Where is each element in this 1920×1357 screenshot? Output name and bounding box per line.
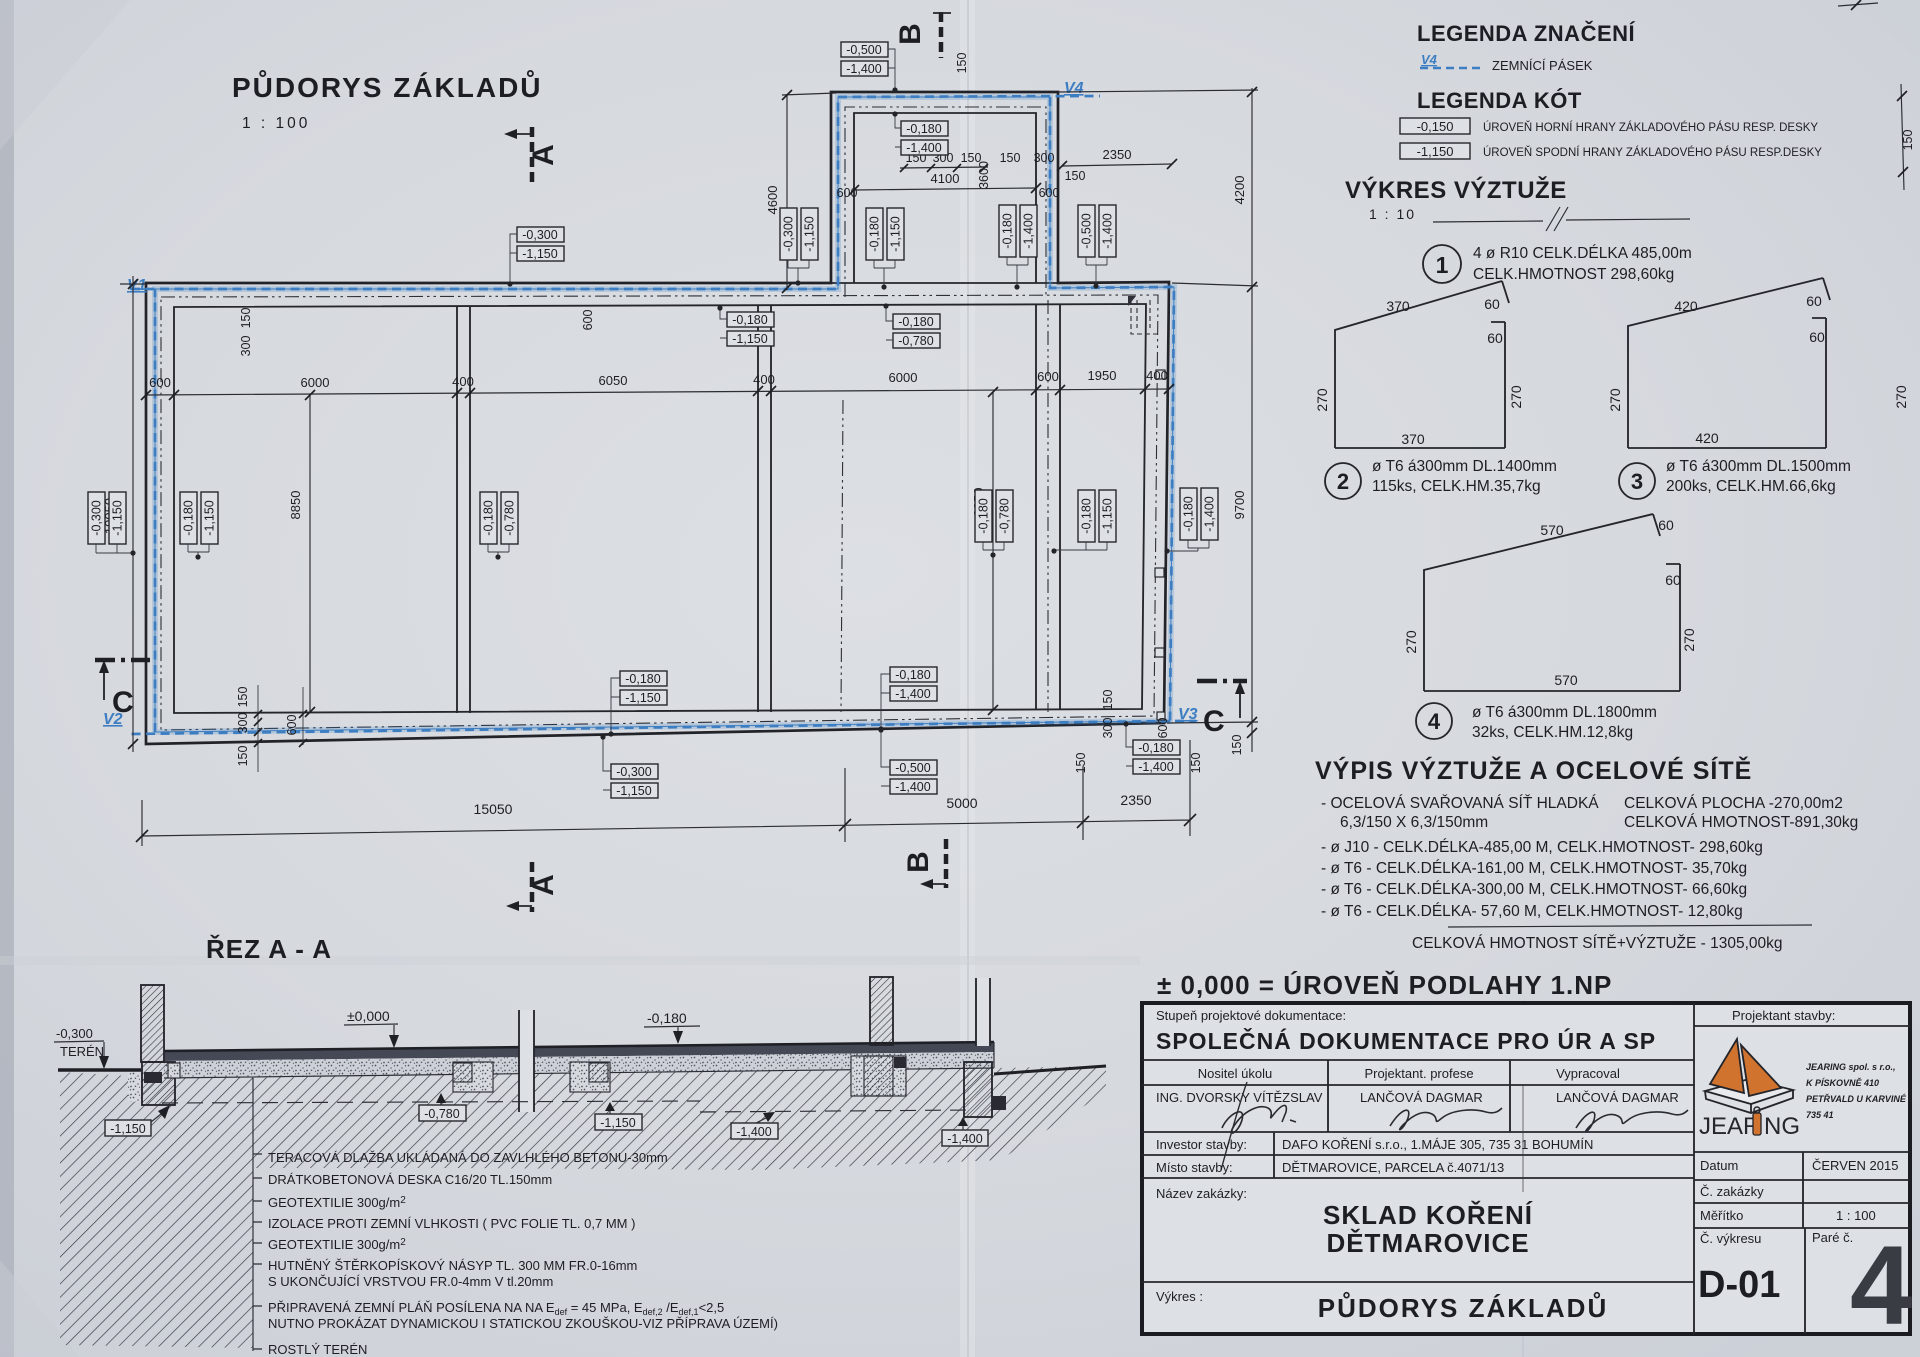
svg-text:DĚTMAROVICE, PARCELA č.4071/: DĚTMAROVICE, PARCELA č.4071/13 <box>1282 1160 1504 1175</box>
svg-text:420: 420 <box>1695 430 1719 446</box>
svg-text:420: 420 <box>1674 298 1698 314</box>
svg-text:6000: 6000 <box>889 370 918 385</box>
svg-text:300: 300 <box>239 336 253 357</box>
svg-text:150: 150 <box>1101 690 1115 711</box>
svg-text:150: 150 <box>1065 169 1086 183</box>
svg-text:600: 600 <box>285 715 299 736</box>
svg-text:- ø J10 - CELK.DÉLKA-485,00 M,: - ø J10 - CELK.DÉLKA-485,00 M, CELK.HMOT… <box>1321 839 1763 856</box>
svg-text:-0,780: -0,780 <box>898 334 933 348</box>
svg-text:5000: 5000 <box>946 795 977 811</box>
svg-text:-1,150: -1,150 <box>1417 144 1454 159</box>
svg-text:-0,300: -0,300 <box>90 500 104 535</box>
svg-text:B: B <box>902 851 935 873</box>
svg-text:±0,000: ±0,000 <box>347 1008 390 1024</box>
svg-text:150: 150 <box>955 53 969 74</box>
svg-text:6000: 6000 <box>301 375 330 390</box>
svg-text:Místo stavby:: Místo stavby: <box>1156 1160 1233 1175</box>
svg-text:370: 370 <box>1386 298 1410 314</box>
svg-text:60: 60 <box>1806 293 1822 309</box>
svg-text:32ks, CELK.HM.12,8kg: 32ks, CELK.HM.12,8kg <box>1472 724 1633 741</box>
svg-text:GEOTEXTILIE 300g/m2: GEOTEXTILIE 300g/m2 <box>268 1237 406 1252</box>
svg-text:150: 150 <box>1230 735 1244 756</box>
svg-text:-0,180: -0,180 <box>482 500 496 535</box>
svg-text:1: 1 <box>1436 252 1449 278</box>
svg-text:1 : 100: 1 : 100 <box>242 115 310 132</box>
svg-text:Projektant. profese: Projektant. profese <box>1364 1066 1473 1081</box>
svg-text:570: 570 <box>1540 522 1564 538</box>
svg-text:600: 600 <box>149 375 171 390</box>
svg-text:-1,150: -1,150 <box>889 216 903 251</box>
svg-text:-1,150: -1,150 <box>522 247 557 261</box>
svg-text:-0,300: -0,300 <box>522 228 557 242</box>
svg-text:-1,400: -1,400 <box>947 1132 982 1146</box>
svg-text:1 : 100: 1 : 100 <box>1836 1208 1876 1223</box>
svg-text:V4: V4 <box>1421 52 1438 67</box>
svg-text:-0,180: -0,180 <box>732 313 767 327</box>
svg-text:D-01: D-01 <box>1698 1264 1780 1306</box>
svg-text:4: 4 <box>1428 709 1441 734</box>
svg-text:Výkres :: Výkres : <box>1156 1289 1203 1304</box>
svg-text:-1,400: -1,400 <box>846 62 881 76</box>
svg-text:Investor stavby:: Investor stavby: <box>1156 1137 1247 1152</box>
svg-text:200ks, CELK.HM.66,6kg: 200ks, CELK.HM.66,6kg <box>1666 478 1836 495</box>
svg-text:TERACOVÁ DLAŽBA UKLÁDANÁ DO ZA: TERACOVÁ DLAŽBA UKLÁDANÁ DO ZAVLHLÉHO BE… <box>268 1150 668 1165</box>
svg-text:-0,300: -0,300 <box>782 216 796 251</box>
svg-text:Vypracoval: Vypracoval <box>1556 1066 1620 1081</box>
svg-text:Stupeň projektové dokumentac: Stupeň projektové dokumentace: <box>1156 1008 1346 1023</box>
svg-text:1950: 1950 <box>1088 368 1117 383</box>
svg-text:60: 60 <box>1487 330 1503 346</box>
svg-text:ŘEZ A - A: ŘEZ A - A <box>206 934 332 964</box>
svg-text:150: 150 <box>236 746 250 767</box>
svg-text:-0,180: -0,180 <box>977 498 991 533</box>
svg-text:CELK.HMOTNOST 298,60kg: CELK.HMOTNOST 298,60kg <box>1473 266 1674 283</box>
svg-text:- ø T6 - CELK.DÉLKA-300,00 M,: - ø T6 - CELK.DÉLKA-300,00 M, CELK.HMOTN… <box>1321 881 1747 898</box>
svg-text:V3: V3 <box>1178 706 1198 723</box>
svg-text:JEARING spol. s r.o.,: JEARING spol. s r.o., <box>1806 1062 1896 1072</box>
svg-text:A: A <box>527 874 560 896</box>
svg-text:6050: 6050 <box>599 373 628 388</box>
svg-text:-1,150: -1,150 <box>803 216 817 251</box>
svg-text:ÚROVEŇ SPODNÍ HRANY ZÁKLADO: ÚROVEŇ SPODNÍ HRANY ZÁKLADOVÉHO PÁSU RES… <box>1483 146 1822 159</box>
svg-text:300: 300 <box>236 713 250 734</box>
svg-text:2350: 2350 <box>1103 147 1132 162</box>
svg-text:HUTNĚNÝ ŠTĚRKOPÍSKOVÝ NÁSYP TL: HUTNĚNÝ ŠTĚRKOPÍSKOVÝ NÁSYP TL. 300 MM F… <box>268 1258 637 1273</box>
svg-text:-1,400: -1,400 <box>1101 213 1115 248</box>
svg-text:270: 270 <box>1681 628 1697 652</box>
svg-text:PŮDORYS ZÁKLADŮ: PŮDORYS ZÁKLADŮ <box>232 70 543 103</box>
svg-text:-1,400: -1,400 <box>906 141 941 155</box>
svg-text:-1,150: -1,150 <box>110 1122 145 1136</box>
svg-text:2350: 2350 <box>1120 792 1151 808</box>
svg-text:SPOLEČNÁ DOKUMENTACE PRO ÚR: SPOLEČNÁ DOKUMENTACE PRO ÚR A SP <box>1156 1027 1656 1054</box>
svg-text:Č. výkresu: Č. výkresu <box>1700 1231 1761 1246</box>
svg-text:3600: 3600 <box>977 161 991 189</box>
svg-text:-0,300: -0,300 <box>56 1026 93 1041</box>
svg-text:Název zakázky:: Název zakázky: <box>1156 1186 1247 1201</box>
svg-text:S UKONČUJÍCÍ VRSTVOU FR.0-4mm: S UKONČUJÍCÍ VRSTVOU FR.0-4mm V tl.20mm <box>268 1274 553 1289</box>
svg-text:-0,180: -0,180 <box>1138 741 1173 755</box>
svg-text:150: 150 <box>236 687 250 708</box>
svg-text:150: 150 <box>239 308 253 329</box>
svg-text:NUTNO PROKÁZAT DYNAMICKOU I ST: NUTNO PROKÁZAT DYNAMICKOU I STATICKOU ZK… <box>268 1316 778 1331</box>
svg-text:300: 300 <box>1101 718 1115 739</box>
svg-text:-0,300: -0,300 <box>616 765 651 779</box>
svg-text:-1,400: -1,400 <box>895 687 930 701</box>
svg-text:150: 150 <box>1189 753 1203 774</box>
svg-text:DRÁTKOBETONOVÁ DESKA C16/20 TL: DRÁTKOBETONOVÁ DESKA C16/20 TL.150mm <box>268 1172 552 1187</box>
svg-text:4600: 4600 <box>765 186 780 215</box>
svg-text:-1,400: -1,400 <box>1203 496 1217 531</box>
svg-text:9700: 9700 <box>1232 491 1247 520</box>
svg-text:-0,180: -0,180 <box>182 500 196 535</box>
svg-text:-1,150: -1,150 <box>203 500 217 535</box>
svg-text:Č. zakázky: Č. zakázky <box>1700 1184 1764 1199</box>
svg-text:V4: V4 <box>1064 80 1084 97</box>
svg-text:Nositel úkolu: Nositel úkolu <box>1198 1066 1272 1081</box>
svg-text:270: 270 <box>1314 388 1330 412</box>
svg-text:VÝKRES VÝZTUŽE: VÝKRES VÝZTUŽE <box>1345 176 1567 204</box>
svg-text:PŮDORYS ZÁKLADŮ: PŮDORYS ZÁKLADŮ <box>1318 1291 1608 1323</box>
svg-text:150: 150 <box>1074 753 1088 774</box>
svg-text:Projektant stavby:: Projektant stavby: <box>1732 1008 1835 1023</box>
svg-text:-0,180: -0,180 <box>647 1010 687 1026</box>
svg-text:SKLAD KOŘENÍ: SKLAD KOŘENÍ <box>1323 1200 1533 1230</box>
svg-text:CELKOVÁ HMOTNOST SÍTĚ+VÝZTUŽE: CELKOVÁ HMOTNOST SÍTĚ+VÝZTUŽE - 1305,00k… <box>1412 935 1783 952</box>
svg-text:ČERVEN 2015: ČERVEN 2015 <box>1812 1158 1898 1173</box>
svg-text:-1,150: -1,150 <box>616 784 651 798</box>
svg-text:-0,500: -0,500 <box>846 43 881 57</box>
svg-text:735 41: 735 41 <box>1806 1110 1834 1120</box>
svg-text:150: 150 <box>1000 151 1021 165</box>
svg-text:270: 270 <box>1607 388 1623 412</box>
svg-text:6,3/150 X 6,3/150mm: 6,3/150 X 6,3/150mm <box>1340 814 1488 831</box>
svg-text:-0,500: -0,500 <box>895 761 930 775</box>
svg-text:B: B <box>894 23 927 45</box>
svg-text:-0,180: -0,180 <box>906 122 941 136</box>
svg-text:570: 570 <box>1554 672 1578 688</box>
svg-text:400: 400 <box>753 372 775 387</box>
svg-text:4 ø R10 CELK.DÉLKA 485,00m: 4 ø R10 CELK.DÉLKA 485,00m <box>1473 245 1692 262</box>
svg-text:Měřítko: Měřítko <box>1700 1208 1743 1223</box>
svg-text:150: 150 <box>1901 130 1915 151</box>
svg-text:270: 270 <box>1508 385 1524 409</box>
svg-text:IZOLACE PROTI ZEMNÍ VLHKOSTI (: IZOLACE PROTI ZEMNÍ VLHKOSTI ( PVC FOLIE… <box>268 1216 635 1231</box>
svg-text:C: C <box>1203 705 1225 738</box>
svg-text:-0,150: -0,150 <box>1417 119 1454 134</box>
svg-text:3: 3 <box>1631 469 1643 494</box>
svg-text:Datum: Datum <box>1700 1158 1738 1173</box>
svg-text:15050: 15050 <box>474 801 513 817</box>
svg-text:A: A <box>527 144 560 166</box>
svg-text:60: 60 <box>1809 329 1825 345</box>
svg-text:400: 400 <box>1146 368 1168 383</box>
svg-text:-0,500: -0,500 <box>1080 213 1094 248</box>
svg-text:DĚTMAROVICE: DĚTMAROVICE <box>1326 1228 1529 1258</box>
svg-text:-0,780: -0,780 <box>424 1107 459 1121</box>
svg-text:-0,180: -0,180 <box>898 315 933 329</box>
svg-text:4100: 4100 <box>931 171 960 186</box>
svg-text:4: 4 <box>1850 1223 1912 1348</box>
svg-text:-1,150: -1,150 <box>732 332 767 346</box>
svg-text:-1,400: -1,400 <box>1138 760 1173 774</box>
svg-text:-1,150: -1,150 <box>1101 498 1115 533</box>
svg-text:LEGENDA KÓT: LEGENDA KÓT <box>1417 88 1582 113</box>
svg-text:ø T6 á300mm DL.1500mm: ø T6 á300mm DL.1500mm <box>1666 458 1851 475</box>
svg-text:600: 600 <box>1037 369 1059 384</box>
svg-text:60: 60 <box>1484 296 1500 312</box>
svg-text:270: 270 <box>1403 630 1419 654</box>
svg-text:-1,150: -1,150 <box>111 500 125 535</box>
svg-text:-0,180: -0,180 <box>1001 213 1015 248</box>
svg-text:600: 600 <box>837 186 858 200</box>
svg-text:NG: NG <box>1764 1113 1800 1140</box>
svg-text:300: 300 <box>1034 151 1055 165</box>
svg-text:-1,150: -1,150 <box>625 691 660 705</box>
svg-text:ZEMNÍCÍ PÁSEK: ZEMNÍCÍ PÁSEK <box>1492 58 1593 73</box>
svg-text:DAFO KOŘENÍ s.r.o., 1.MÁJE: DAFO KOŘENÍ s.r.o., 1.MÁJE 305, 735 31 B… <box>1282 1137 1593 1152</box>
svg-text:LEGENDA ZNAČENÍ: LEGENDA ZNAČENÍ <box>1417 21 1636 46</box>
svg-text:ø T6 á300mm DL.1800mm: ø T6 á300mm DL.1800mm <box>1472 704 1657 721</box>
svg-text:-1,400: -1,400 <box>736 1125 771 1139</box>
svg-text:± 0,000 = ÚROVEŇ PODLAHY 1.N: ± 0,000 = ÚROVEŇ PODLAHY 1.NP <box>1157 970 1612 1000</box>
svg-text:GEOTEXTILIE 300g/m2: GEOTEXTILIE 300g/m2 <box>268 1195 406 1210</box>
svg-text:JEAR: JEAR <box>1699 1113 1760 1140</box>
svg-text:-1,400: -1,400 <box>895 780 930 794</box>
svg-text:Paré č.: Paré č. <box>1812 1230 1853 1245</box>
svg-text:600: 600 <box>1156 718 1170 739</box>
svg-text:-0,780: -0,780 <box>503 500 517 535</box>
svg-text:TERÉN: TERÉN <box>60 1044 104 1059</box>
svg-text:ROSTLÝ TERÉN: ROSTLÝ TERÉN <box>268 1342 367 1357</box>
svg-text:CELKOVÁ PLOCHA -270,00m2: CELKOVÁ PLOCHA -270,00m2 <box>1624 795 1843 812</box>
svg-text:400: 400 <box>452 374 474 389</box>
svg-text:ÚROVEŇ HORNÍ HRANY ZÁKLADOV: ÚROVEŇ HORNÍ HRANY ZÁKLADOVÉHO PÁSU RESP… <box>1483 121 1818 134</box>
svg-text:270: 270 <box>1893 385 1909 409</box>
svg-text:4200: 4200 <box>1232 176 1247 205</box>
svg-text:ø T6 á300mm DL.1400mm: ø T6 á300mm DL.1400mm <box>1372 458 1557 475</box>
svg-text:60: 60 <box>1665 572 1681 588</box>
svg-text:8850: 8850 <box>288 491 303 520</box>
svg-text:60: 60 <box>1658 517 1674 533</box>
svg-text:600: 600 <box>581 310 595 331</box>
svg-text:PETŘVALD U KARVINÉ: PETŘVALD U KARVINÉ <box>1806 1093 1907 1104</box>
svg-text:K PÍSKOVNĚ 410: K PÍSKOVNĚ 410 <box>1806 1077 1879 1088</box>
svg-text:-0,180: -0,180 <box>1182 496 1196 531</box>
svg-text:VÝPIS VÝZTUŽE A OCELOVÉ SÍ: VÝPIS VÝZTUŽE A OCELOVÉ SÍTĚ <box>1315 755 1752 785</box>
svg-text:-0,180: -0,180 <box>868 216 882 251</box>
svg-text:LANČOVÁ DAGMAR: LANČOVÁ DAGMAR <box>1360 1090 1483 1105</box>
svg-text:- ø T6 - CELK.DÉLKA-161,00 M,: - ø T6 - CELK.DÉLKA-161,00 M, CELK.HMOTN… <box>1321 860 1747 877</box>
svg-text:115ks, CELK.HM.35,7kg: 115ks, CELK.HM.35,7kg <box>1372 478 1541 495</box>
svg-text:370: 370 <box>1401 431 1425 447</box>
svg-text:-0,780: -0,780 <box>998 498 1012 533</box>
svg-text:-0,180: -0,180 <box>625 672 660 686</box>
svg-text:2: 2 <box>1337 469 1349 494</box>
svg-text:- ø T6 - CELK.DÉLKA- 57,60 M,: - ø T6 - CELK.DÉLKA- 57,60 M, CELK.HMOTN… <box>1321 903 1743 920</box>
svg-text:ING. DVORSKY VÍTĚZSLAV: ING. DVORSKY VÍTĚZSLAV <box>1156 1090 1323 1105</box>
svg-text:-0,180: -0,180 <box>1080 498 1094 533</box>
svg-text:C: C <box>112 686 134 719</box>
svg-text:1 : 10: 1 : 10 <box>1369 206 1416 222</box>
svg-text:-1,150: -1,150 <box>600 1116 635 1130</box>
svg-text:- OCELOVÁ SVAŘOVANÁ SÍŤ HLADK: - OCELOVÁ SVAŘOVANÁ SÍŤ HLADKÁ <box>1321 795 1599 812</box>
svg-text:LANČOVÁ DAGMAR: LANČOVÁ DAGMAR <box>1556 1090 1679 1105</box>
svg-text:CELKOVÁ HMOTNOST-891,30kg: CELKOVÁ HMOTNOST-891,30kg <box>1624 814 1858 831</box>
svg-text:-0,180: -0,180 <box>895 668 930 682</box>
svg-text:-1,400: -1,400 <box>1022 213 1036 248</box>
svg-text:600: 600 <box>1039 186 1060 200</box>
